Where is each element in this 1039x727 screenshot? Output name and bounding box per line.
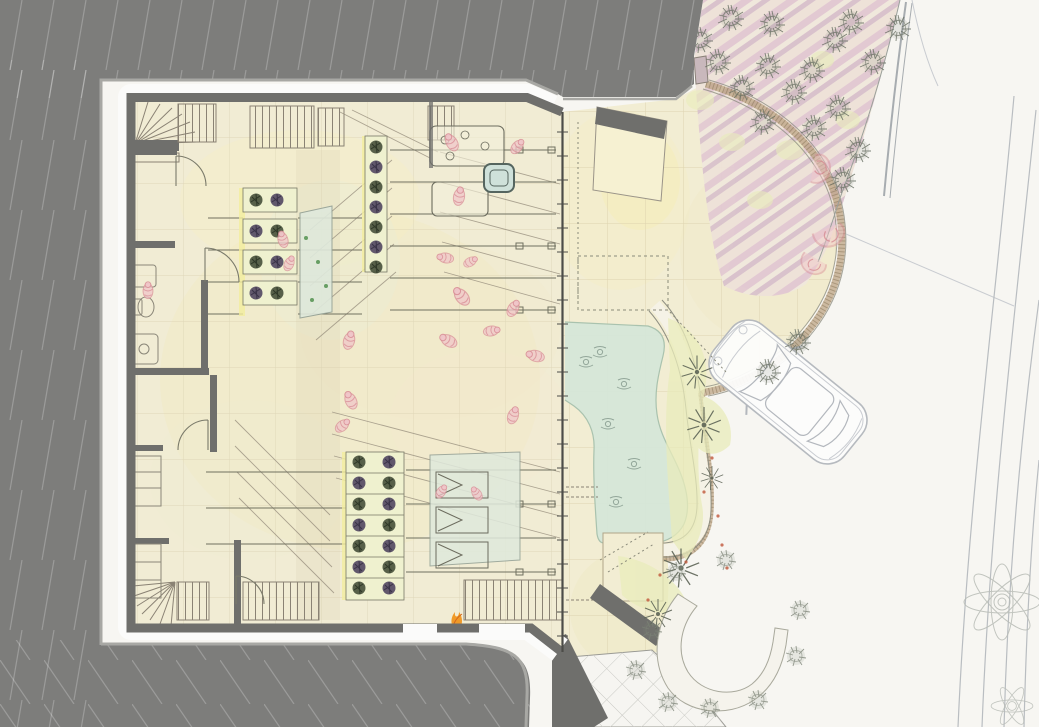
site-plan-canvas — [0, 0, 1039, 727]
stair-flight — [178, 104, 216, 142]
stair-flight — [464, 580, 562, 620]
glass-panel-lower — [430, 452, 520, 566]
building — [129, 97, 571, 653]
stair-flight — [318, 108, 344, 146]
wall-niche — [403, 624, 437, 633]
stair-flight — [243, 582, 319, 620]
gate-pillar — [694, 56, 708, 84]
sink-unit — [484, 164, 514, 192]
stair-flight — [177, 582, 209, 620]
wall-niche — [479, 624, 525, 633]
stair-flight — [250, 106, 314, 148]
site-plan-drawing — [0, 0, 1039, 727]
glazed-east-wall — [556, 112, 571, 652]
